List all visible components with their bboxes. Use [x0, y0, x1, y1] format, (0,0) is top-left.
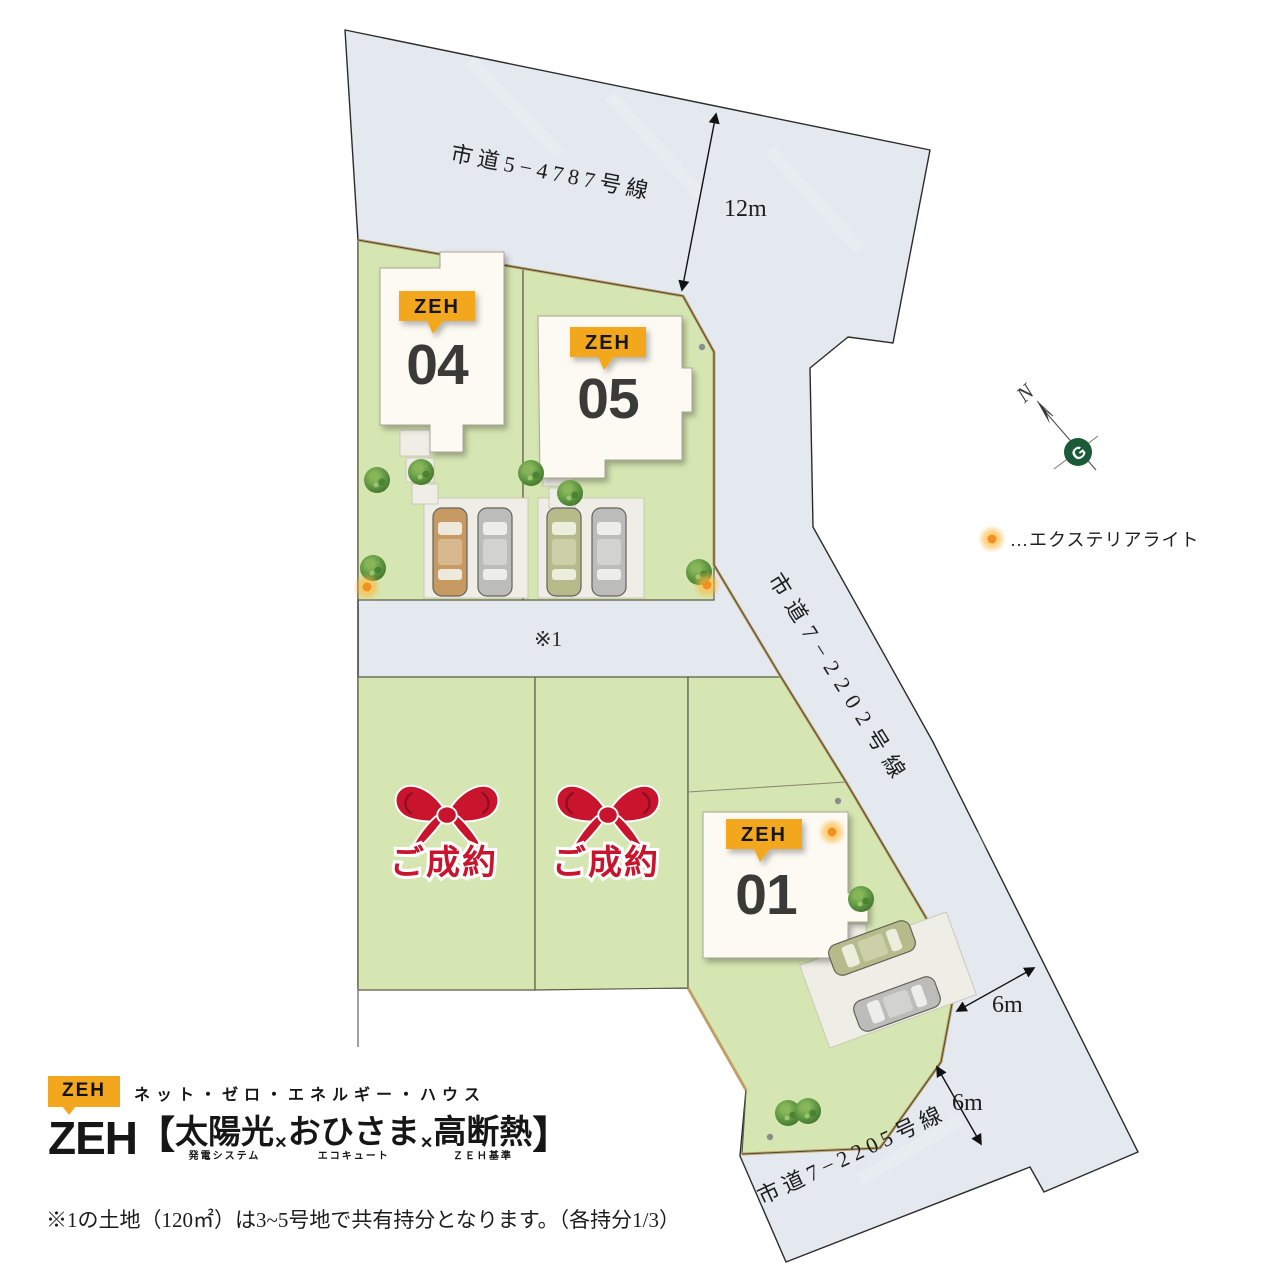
shared-ownership-note: ※1の土地（120㎡）は3~5号地で共有持分となります。（各持分1/3）	[46, 1204, 680, 1234]
car-tan	[433, 508, 467, 596]
compass-north-label: N	[1010, 378, 1039, 408]
lot-02-parcel-sold	[535, 677, 688, 990]
lot-number-04: 04	[406, 333, 469, 397]
sold-label-lot03: ご成約	[390, 844, 498, 882]
compass: G N	[1010, 378, 1098, 470]
feature-ohisama-main: おひさま	[288, 1115, 420, 1148]
bracket-open: 【	[137, 1115, 175, 1159]
headline-zeh: ZEH	[48, 1115, 137, 1161]
multiply-sign: ×	[421, 1133, 433, 1153]
sold-label-lot02: ご成約	[552, 844, 660, 882]
feature-solar: 太陽光 発電システム	[175, 1115, 274, 1162]
multiply-sign: ×	[275, 1133, 287, 1153]
shared-area-marker: ※1	[534, 627, 562, 651]
zeh-branding: ZEH ネット・ゼロ・エネルギー・ハウス ZEH 【 太陽光 発電システム × …	[48, 1076, 570, 1162]
feature-insulation-main: 高断熱	[433, 1115, 532, 1148]
zeh-chip-tail	[62, 1106, 76, 1115]
lot-number-01: 01	[735, 863, 797, 927]
dim-12m: 12m	[724, 196, 767, 222]
legend-exterior-light-label: …エクステリアライト	[1010, 530, 1199, 550]
legend: …エクステリアライト	[978, 525, 1199, 553]
zeh-subtitle: ネット・ゼロ・エネルギー・ハウス	[134, 1081, 486, 1107]
zeh-chip-label: ZEH	[62, 1080, 106, 1101]
zeh-chip-badge: ZEH	[48, 1076, 120, 1107]
car-silver	[592, 508, 626, 596]
zeh-badge-label: ZEH	[414, 296, 460, 318]
feature-insulation-sub: ＺＥＨ基準	[453, 1152, 513, 1162]
car-olive	[547, 508, 581, 596]
car-silver	[478, 508, 512, 596]
zeh-badge-label: ZEH	[741, 824, 787, 846]
site-plan-page: ZEH ZEH ZEH 04 05 01 ご成約 ご成約 12m 6m 6m 市…	[0, 0, 1280, 1280]
feature-ohisama-sub: エコキュート	[318, 1152, 390, 1162]
zeh-headline: ZEH 【 太陽光 発電システム × おひさま エコキュート × 高断熱 ＺＥＨ…	[48, 1115, 570, 1162]
dim-6m-east: 6m	[992, 992, 1023, 1018]
zeh-badge-label: ZEH	[585, 332, 631, 354]
bracket-close: 】	[532, 1115, 570, 1159]
lot-03-parcel-sold	[358, 677, 535, 990]
feature-ohisama: おひさま エコキュート	[288, 1115, 420, 1162]
dim-6m-south: 6m	[952, 1090, 983, 1116]
feature-insulation: 高断熱 ＺＥＨ基準	[433, 1115, 532, 1162]
lot-number-05: 05	[577, 367, 639, 431]
feature-solar-main: 太陽光	[175, 1115, 274, 1148]
feature-solar-sub: 発電システム	[189, 1152, 261, 1162]
